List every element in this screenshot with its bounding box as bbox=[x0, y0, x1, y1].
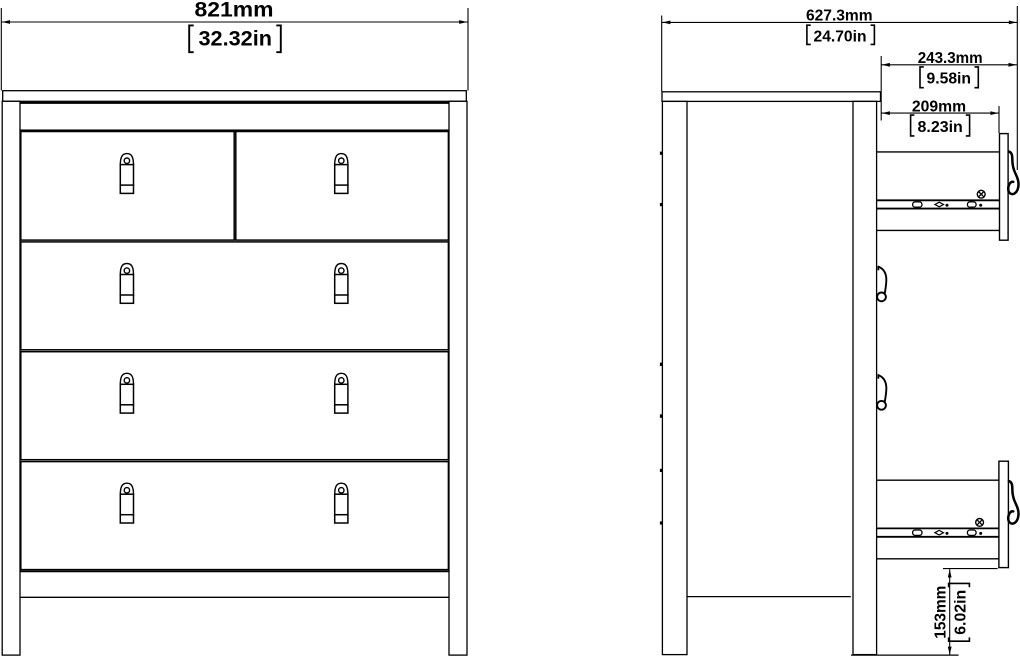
svg-text:24.70in: 24.70in bbox=[814, 28, 867, 45]
svg-text:153mm: 153mm bbox=[932, 586, 949, 639]
svg-text:8.23in: 8.23in bbox=[918, 119, 963, 136]
svg-text:627.3mm: 627.3mm bbox=[806, 8, 873, 25]
svg-text:209mm: 209mm bbox=[912, 98, 966, 115]
svg-text:243.3mm: 243.3mm bbox=[918, 50, 983, 67]
svg-text:32.32in: 32.32in bbox=[199, 27, 273, 51]
svg-text:821mm: 821mm bbox=[195, 0, 274, 22]
svg-text:9.58in: 9.58in bbox=[927, 70, 972, 87]
svg-text:6.02in: 6.02in bbox=[953, 590, 970, 635]
